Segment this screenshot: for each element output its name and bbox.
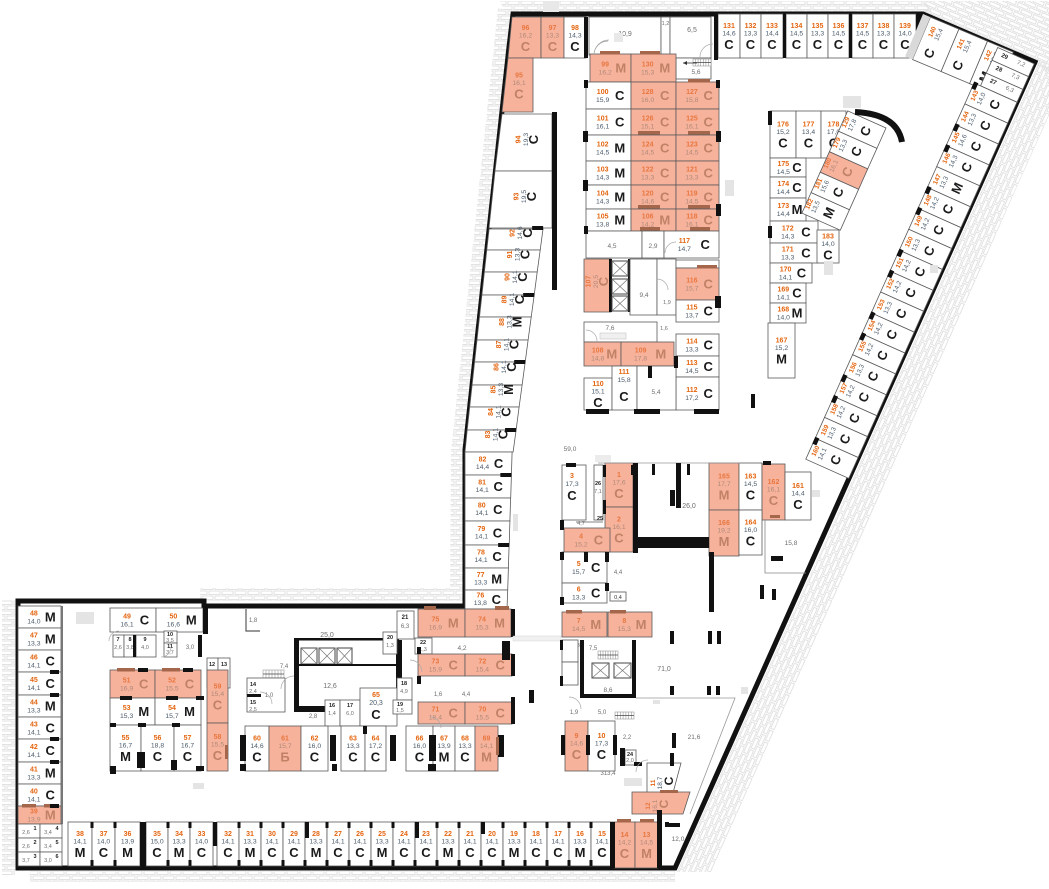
svg-text:124: 124 — [642, 142, 654, 149]
svg-text:С: С — [704, 88, 714, 103]
svg-text:88: 88 — [499, 318, 506, 326]
svg-text:16,1: 16,1 — [596, 124, 609, 131]
svg-text:59: 59 — [214, 684, 222, 691]
svg-text:1,2: 1,2 — [662, 21, 670, 27]
svg-text:С: С — [333, 845, 343, 860]
svg-text:6: 6 — [577, 587, 581, 594]
svg-text:С: С — [801, 246, 811, 261]
svg-text:М: М — [614, 190, 625, 205]
svg-text:14,6: 14,6 — [641, 199, 654, 206]
svg-text:18: 18 — [401, 681, 407, 687]
svg-text:М: М — [614, 166, 625, 181]
svg-text:11: 11 — [650, 779, 657, 786]
svg-text:С: С — [460, 750, 470, 765]
svg-text:С: С — [465, 845, 475, 860]
svg-text:М: М — [776, 352, 787, 367]
svg-text:15,3: 15,3 — [618, 626, 631, 633]
svg-text:С: С — [493, 526, 503, 541]
svg-text:М: М — [377, 845, 388, 860]
svg-text:С: С — [139, 677, 149, 692]
svg-text:1: 1 — [617, 472, 621, 479]
svg-text:С: С — [524, 191, 539, 201]
svg-text:13,3: 13,3 — [27, 775, 40, 782]
svg-text:С: С — [99, 845, 109, 860]
svg-text:С: С — [153, 749, 163, 764]
svg-text:116: 116 — [686, 278, 697, 285]
svg-text:2: 2 — [617, 517, 621, 524]
svg-text:6,3: 6,3 — [401, 624, 410, 630]
svg-text:121: 121 — [686, 167, 698, 174]
svg-text:37: 37 — [100, 831, 108, 838]
svg-text:15,7: 15,7 — [572, 569, 585, 576]
svg-text:14,3: 14,3 — [596, 199, 609, 206]
svg-text:С: С — [704, 190, 714, 205]
svg-text:177: 177 — [803, 122, 815, 129]
svg-text:3,7: 3,7 — [22, 858, 30, 864]
svg-text:28: 28 — [312, 831, 320, 838]
svg-text:2,2: 2,2 — [623, 735, 632, 741]
svg-text:139: 139 — [899, 23, 911, 30]
svg-text:98: 98 — [571, 25, 579, 32]
svg-text:161: 161 — [792, 483, 804, 490]
svg-text:82: 82 — [479, 457, 487, 464]
svg-text:С: С — [615, 88, 625, 103]
svg-text:16,9: 16,9 — [429, 625, 442, 632]
svg-text:С: С — [615, 115, 625, 130]
svg-text:104: 104 — [597, 191, 609, 198]
svg-text:111: 111 — [619, 369, 630, 376]
svg-text:16,6: 16,6 — [167, 622, 180, 629]
svg-text:13,9: 13,9 — [27, 817, 40, 824]
svg-text:М: М — [75, 845, 86, 860]
svg-text:М: М — [614, 213, 625, 228]
svg-text:2,6: 2,6 — [114, 645, 122, 651]
svg-text:58: 58 — [214, 734, 222, 741]
svg-text:178: 178 — [828, 122, 840, 129]
svg-text:2,8: 2,8 — [309, 714, 318, 720]
svg-text:113: 113 — [686, 360, 697, 367]
svg-text:16,2: 16,2 — [599, 70, 612, 77]
svg-text:С: С — [660, 88, 670, 103]
svg-text:14,4: 14,4 — [777, 211, 790, 218]
svg-text:60: 60 — [253, 736, 261, 743]
svg-text:73: 73 — [431, 659, 439, 666]
svg-text:8,6: 8,6 — [603, 687, 612, 694]
svg-text:4,5: 4,5 — [607, 243, 616, 250]
svg-text:85: 85 — [491, 386, 498, 394]
svg-text:99: 99 — [601, 62, 609, 69]
svg-text:С: С — [596, 276, 611, 286]
svg-text:С: С — [371, 750, 381, 765]
svg-text:68: 68 — [461, 736, 469, 743]
svg-text:13,3: 13,3 — [27, 708, 40, 715]
svg-text:С: С — [792, 180, 802, 195]
svg-text:107: 107 — [586, 276, 593, 288]
svg-text:М: М — [655, 347, 666, 362]
svg-text:С: С — [267, 845, 277, 860]
svg-text:26: 26 — [595, 481, 601, 487]
svg-text:С: С — [704, 386, 714, 401]
svg-text:3,8: 3,8 — [126, 645, 134, 651]
svg-text:М: М — [719, 488, 730, 503]
svg-text:169: 169 — [777, 287, 789, 294]
svg-text:29: 29 — [290, 831, 298, 838]
svg-text:3: 3 — [33, 854, 36, 860]
svg-text:83: 83 — [485, 431, 492, 439]
svg-text:106: 106 — [642, 214, 654, 221]
svg-text:С: С — [704, 338, 714, 353]
svg-text:М: М — [509, 845, 520, 860]
svg-text:М: М — [501, 384, 516, 395]
svg-text:134: 134 — [791, 23, 803, 30]
svg-text:16: 16 — [329, 703, 335, 709]
svg-text:109: 109 — [635, 348, 647, 355]
svg-text:С: С — [494, 456, 504, 471]
svg-text:74: 74 — [478, 617, 486, 624]
svg-text:175: 175 — [777, 161, 789, 168]
svg-text:С: С — [46, 788, 56, 803]
svg-text:М: М — [174, 845, 185, 860]
svg-text:92: 92 — [510, 229, 517, 237]
svg-text:80: 80 — [478, 503, 486, 510]
svg-text:5,0: 5,0 — [598, 710, 607, 716]
svg-text:15,8: 15,8 — [785, 540, 798, 547]
svg-text:14,1: 14,1 — [777, 295, 790, 302]
svg-text:15,1: 15,1 — [641, 124, 654, 131]
svg-text:33: 33 — [198, 831, 206, 838]
svg-text:0,4: 0,4 — [614, 595, 622, 601]
svg-text:С: С — [704, 304, 714, 319]
svg-text:С: С — [746, 37, 756, 52]
svg-text:С: С — [371, 707, 381, 722]
svg-text:М: М — [481, 750, 492, 765]
svg-text:1,4: 1,4 — [328, 711, 336, 717]
svg-text:8: 8 — [622, 618, 626, 625]
svg-text:166: 166 — [718, 520, 730, 527]
svg-text:С: С — [704, 359, 714, 374]
svg-text:7,5: 7,5 — [589, 646, 598, 652]
svg-text:71: 71 — [431, 707, 439, 714]
svg-text:4: 4 — [579, 534, 583, 541]
svg-text:115: 115 — [686, 305, 697, 312]
svg-text:5: 5 — [577, 561, 581, 568]
svg-text:176: 176 — [777, 122, 789, 129]
svg-text:М: М — [45, 610, 56, 625]
svg-text:13,8: 13,8 — [474, 600, 487, 607]
svg-text:137: 137 — [857, 23, 869, 30]
svg-text:С: С — [415, 750, 425, 765]
svg-text:15,8: 15,8 — [617, 377, 630, 384]
svg-text:1,5: 1,5 — [396, 708, 404, 714]
svg-text:120: 120 — [642, 191, 654, 198]
svg-text:112: 112 — [686, 387, 697, 394]
svg-text:М: М — [614, 141, 625, 156]
svg-text:5,4: 5,4 — [651, 389, 660, 396]
svg-text:С: С — [614, 486, 624, 501]
svg-text:3,4: 3,4 — [44, 830, 52, 836]
svg-text:13,3: 13,3 — [474, 580, 487, 587]
svg-text:4,0: 4,0 — [141, 645, 149, 651]
svg-text:91: 91 — [507, 251, 514, 259]
svg-text:2,5: 2,5 — [249, 707, 257, 713]
svg-text:21,6: 21,6 — [688, 734, 701, 741]
svg-text:14,1: 14,1 — [27, 752, 40, 759]
svg-text:М: М — [590, 617, 601, 632]
svg-text:С: С — [792, 286, 802, 301]
svg-text:13: 13 — [643, 832, 651, 839]
svg-text:1,6: 1,6 — [434, 692, 443, 698]
svg-text:48: 48 — [30, 611, 38, 618]
svg-text:С: С — [704, 166, 714, 181]
svg-text:М: М — [575, 845, 586, 860]
svg-text:171: 171 — [782, 247, 794, 254]
svg-text:3,0: 3,0 — [186, 645, 195, 651]
svg-text:49: 49 — [123, 614, 131, 621]
svg-text:4,2: 4,2 — [457, 645, 466, 652]
svg-text:С: С — [507, 339, 522, 349]
svg-text:15,2: 15,2 — [574, 542, 587, 549]
svg-text:70: 70 — [478, 707, 486, 714]
svg-text:41: 41 — [30, 767, 38, 774]
svg-text:54: 54 — [168, 705, 176, 712]
svg-text:13,3: 13,3 — [781, 255, 794, 262]
svg-text:14,1: 14,1 — [474, 557, 487, 564]
svg-text:С: С — [813, 37, 823, 52]
svg-text:170: 170 — [780, 267, 792, 274]
svg-text:27: 27 — [334, 831, 342, 838]
svg-text:8: 8 — [128, 637, 131, 643]
svg-text:С: С — [140, 613, 150, 628]
svg-text:14,5: 14,5 — [685, 368, 698, 375]
svg-text:75: 75 — [431, 617, 439, 624]
svg-text:С: С — [704, 213, 714, 228]
svg-text:С: С — [521, 39, 531, 54]
svg-text:15,3: 15,3 — [641, 70, 654, 77]
svg-text:72: 72 — [478, 659, 486, 666]
svg-text:М: М — [792, 306, 803, 321]
svg-text:13: 13 — [221, 662, 227, 668]
svg-text:65: 65 — [372, 692, 380, 699]
svg-text:С: С — [223, 845, 233, 860]
svg-text:С: С — [515, 272, 530, 282]
svg-text:97: 97 — [549, 25, 557, 32]
svg-text:С: С — [310, 750, 320, 765]
svg-text:1,6: 1,6 — [660, 326, 668, 332]
svg-text:94: 94 — [516, 136, 523, 144]
svg-text:С: С — [46, 721, 56, 736]
svg-text:76: 76 — [476, 593, 484, 600]
svg-text:15,3: 15,3 — [120, 713, 133, 720]
svg-text:46: 46 — [30, 655, 38, 662]
svg-text:35: 35 — [153, 831, 161, 838]
svg-text:9: 9 — [143, 637, 146, 643]
svg-text:14,1: 14,1 — [476, 487, 489, 494]
svg-text:96: 96 — [522, 25, 530, 32]
svg-text:16,1: 16,1 — [120, 622, 133, 629]
svg-text:89: 89 — [502, 296, 509, 304]
svg-text:61: 61 — [281, 736, 289, 743]
svg-text:17,3: 17,3 — [565, 481, 578, 488]
svg-text:С: С — [518, 249, 533, 259]
svg-text:М: М — [659, 61, 670, 76]
svg-text:13,7: 13,7 — [685, 313, 698, 320]
svg-text:14,1: 14,1 — [475, 534, 488, 541]
svg-text:С: С — [572, 747, 582, 762]
svg-text:М: М — [45, 766, 56, 781]
svg-text:С: С — [591, 560, 601, 575]
svg-text:С: С — [496, 706, 506, 721]
svg-text:С: С — [213, 748, 223, 763]
svg-text:23: 23 — [422, 831, 430, 838]
svg-text:162: 162 — [768, 479, 780, 486]
svg-text:59,0: 59,0 — [564, 446, 577, 453]
svg-text:С: С — [514, 87, 524, 102]
svg-text:95: 95 — [515, 73, 523, 80]
svg-text:183: 183 — [822, 234, 834, 241]
svg-text:110: 110 — [592, 381, 603, 388]
svg-text:38: 38 — [76, 831, 84, 838]
svg-text:М: М — [636, 617, 647, 632]
svg-text:С: С — [185, 677, 195, 692]
svg-text:6,0: 6,0 — [346, 711, 354, 717]
svg-text:164: 164 — [745, 520, 757, 527]
svg-text:13,3: 13,3 — [641, 175, 654, 182]
svg-text:34: 34 — [175, 831, 183, 838]
svg-text:36: 36 — [124, 831, 132, 838]
svg-text:18: 18 — [532, 831, 540, 838]
svg-text:М: М — [448, 616, 459, 631]
svg-text:12,0: 12,0 — [672, 836, 685, 843]
svg-text:С: С — [597, 747, 607, 762]
svg-text:12: 12 — [645, 802, 652, 810]
svg-text:М: М — [494, 616, 505, 631]
svg-text:21: 21 — [466, 831, 474, 838]
svg-text:19: 19 — [510, 831, 518, 838]
svg-text:14,5: 14,5 — [641, 150, 654, 157]
svg-text:7: 7 — [577, 618, 581, 625]
svg-text:7,6: 7,6 — [605, 325, 614, 332]
svg-text:М: М — [606, 347, 617, 362]
svg-text:С: С — [858, 37, 868, 52]
svg-text:С: С — [879, 37, 889, 52]
svg-text:56: 56 — [154, 735, 162, 742]
svg-text:14,3: 14,3 — [596, 175, 609, 182]
svg-text:С: С — [152, 845, 162, 860]
svg-text:16,1: 16,1 — [685, 124, 698, 131]
svg-text:М: М — [443, 845, 454, 860]
svg-text:14,1: 14,1 — [475, 510, 488, 517]
svg-text:14,0: 14,0 — [27, 619, 40, 626]
svg-text:С: С — [614, 531, 624, 546]
svg-text:С: С — [570, 39, 580, 54]
svg-text:15: 15 — [598, 831, 606, 838]
svg-text:2,6: 2,6 — [22, 830, 30, 836]
svg-text:С: С — [526, 134, 541, 144]
svg-text:126: 126 — [642, 116, 654, 123]
svg-text:С: С — [492, 549, 502, 564]
svg-text:25,0: 25,0 — [320, 632, 334, 639]
svg-text:М: М — [659, 213, 670, 228]
svg-text:С: С — [619, 389, 629, 404]
svg-text:15,5: 15,5 — [165, 686, 178, 693]
svg-text:103: 103 — [597, 167, 609, 174]
svg-text:135: 135 — [812, 23, 824, 30]
svg-text:1,3: 1,3 — [386, 643, 394, 649]
svg-text:62: 62 — [311, 736, 319, 743]
svg-text:С: С — [660, 166, 670, 181]
svg-text:64: 64 — [372, 736, 380, 743]
svg-text:С: С — [823, 248, 833, 263]
svg-text:12,6: 12,6 — [323, 683, 337, 690]
svg-text:С: С — [724, 37, 734, 52]
svg-text:С: С — [594, 533, 604, 548]
svg-text:С: С — [591, 586, 601, 601]
svg-text:С: С — [660, 141, 670, 156]
svg-text:С: С — [769, 493, 779, 508]
svg-text:С: С — [548, 39, 558, 54]
svg-text:6,5: 6,5 — [687, 27, 697, 34]
svg-text:136: 136 — [833, 23, 845, 30]
svg-text:М: М — [792, 202, 803, 217]
svg-text:15: 15 — [250, 700, 256, 706]
svg-text:15,3: 15,3 — [475, 625, 488, 632]
svg-text:52: 52 — [168, 678, 176, 685]
svg-text:16,0: 16,0 — [641, 97, 654, 104]
svg-text:24: 24 — [400, 831, 408, 838]
svg-text:77: 77 — [477, 572, 485, 579]
svg-text:15,7: 15,7 — [165, 713, 178, 720]
svg-text:12: 12 — [209, 662, 215, 668]
svg-text:С: С — [778, 136, 788, 151]
svg-text:14,1: 14,1 — [27, 685, 40, 692]
svg-text:22: 22 — [420, 640, 426, 646]
svg-text:45: 45 — [30, 677, 38, 684]
svg-text:20,3: 20,3 — [369, 700, 383, 707]
svg-text:С: С — [792, 37, 802, 52]
svg-text:2,9: 2,9 — [648, 243, 657, 250]
svg-text:125: 125 — [686, 116, 698, 123]
svg-text:С: С — [567, 488, 577, 503]
svg-text:С: С — [597, 845, 607, 860]
svg-text:М: М — [45, 808, 56, 823]
svg-text:14,1: 14,1 — [27, 663, 40, 670]
svg-text:20: 20 — [387, 635, 393, 641]
svg-text:С: С — [704, 141, 714, 156]
svg-text:М: М — [491, 572, 502, 587]
svg-text:С: С — [487, 845, 497, 860]
svg-text:69: 69 — [483, 736, 491, 743]
svg-text:М: М — [311, 845, 322, 860]
svg-text:С: С — [704, 115, 714, 130]
svg-text:С: С — [498, 407, 513, 417]
svg-text:С: С — [213, 698, 223, 713]
svg-text:9: 9 — [575, 733, 579, 740]
svg-text:42: 42 — [30, 744, 38, 751]
svg-text:С: С — [620, 846, 630, 861]
svg-text:7,1: 7,1 — [594, 489, 602, 495]
svg-text:1,9: 1,9 — [570, 710, 579, 716]
svg-text:67: 67 — [440, 736, 448, 743]
svg-text:С: С — [492, 592, 502, 607]
svg-text:43: 43 — [30, 722, 38, 729]
svg-text:71,0: 71,0 — [657, 666, 671, 673]
svg-text:С: С — [804, 136, 814, 151]
svg-text:86: 86 — [493, 363, 500, 371]
svg-text:313,4: 313,4 — [600, 771, 616, 777]
svg-text:13,8: 13,8 — [596, 222, 609, 229]
svg-text:С: С — [793, 497, 803, 512]
svg-text:14,1: 14,1 — [27, 730, 40, 737]
